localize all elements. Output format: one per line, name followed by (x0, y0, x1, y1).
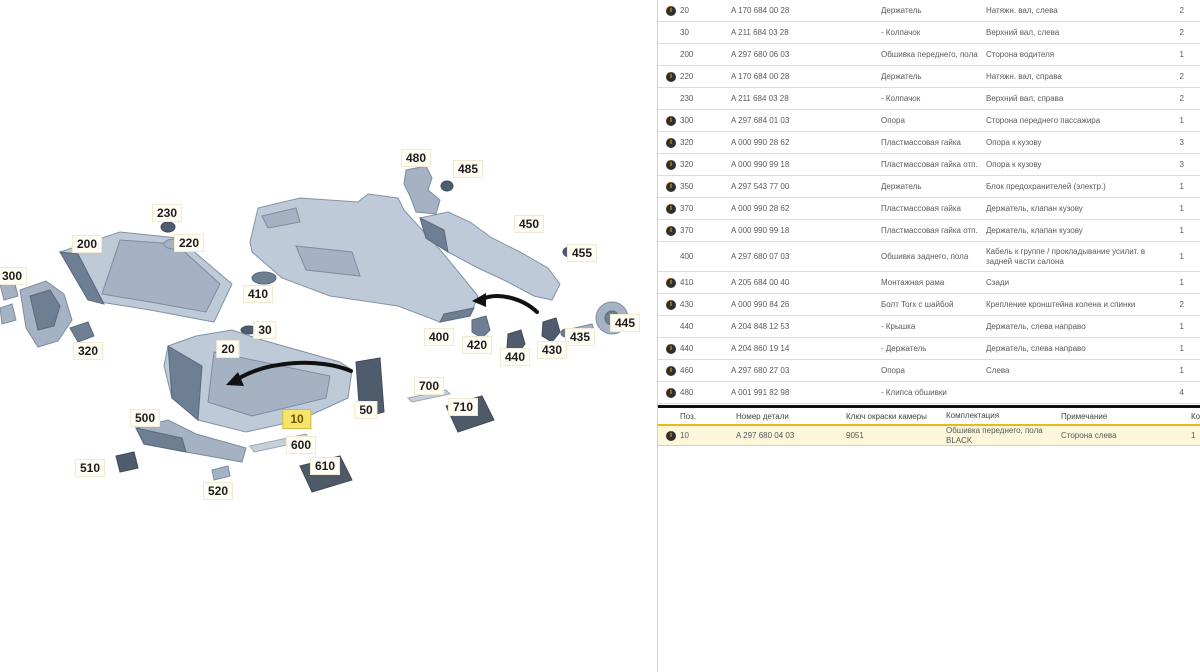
table-row[interactable]: i 30 A 211 684 03 28 - Колпачок Верхний … (658, 22, 1200, 44)
part-name: Опора (881, 116, 986, 125)
table-row[interactable]: i 460 A 297 680 27 03 Опора Слева 1 (658, 360, 1200, 382)
part-qty: 1 (1161, 182, 1200, 191)
part-name: Обшивка переднего, пола (881, 50, 986, 59)
part-number: A 297 680 04 03 (736, 431, 846, 440)
part-number: A 000 990 99 18 (731, 226, 881, 235)
diagram-label[interactable]: 510 (75, 459, 105, 477)
part-note: Сзади (986, 278, 1161, 288)
part-number: A 170 684 00 28 (731, 6, 881, 15)
diagram-label-selected[interactable]: 10 (282, 409, 311, 429)
part-note: Держатель, клапан кузову (986, 226, 1161, 236)
part-number: A 297 680 27 03 (731, 366, 881, 375)
table-row[interactable]: i 440 A 204 848 12 53 - Крышка Держатель… (658, 316, 1200, 338)
position-number: 430 (680, 300, 731, 309)
table-row[interactable]: i 230 A 211 684 03 28 - Колпачок Верхний… (658, 88, 1200, 110)
diagram-label[interactable]: 430 (537, 341, 567, 359)
part-number: A 000 990 84 26 (731, 300, 881, 309)
position-number: 20 (680, 6, 731, 15)
part-qty: 1 (1191, 431, 1200, 440)
diagram-label[interactable]: 710 (448, 398, 478, 416)
position-number: 370 (680, 226, 731, 235)
diagram-label[interactable]: 320 (73, 342, 103, 360)
part-qty: 4 (1161, 388, 1200, 397)
part-number: A 205 684 00 40 (731, 278, 881, 287)
info-icon[interactable]: i (666, 300, 676, 310)
info-icon[interactable]: i (666, 278, 676, 288)
position-number: 320 (680, 160, 731, 169)
diagram-label[interactable]: 440 (500, 348, 530, 366)
diagram-label[interactable]: 450 (514, 215, 544, 233)
position-number: 200 (680, 50, 731, 59)
header-color-key: Ключ окраски камеры (846, 412, 946, 421)
diagram-label[interactable]: 400 (424, 328, 454, 346)
part-name: Держатель (881, 6, 986, 15)
part-name: - Крышка (881, 322, 986, 331)
diagram-label[interactable]: 410 (243, 285, 273, 303)
part-name: Опора (881, 366, 986, 375)
part-qty: 1 (1161, 50, 1200, 59)
position-number: 220 (680, 72, 731, 81)
position-number: 30 (680, 28, 731, 37)
position-number: 320 (680, 138, 731, 147)
header-qty: Кол. (1191, 412, 1200, 421)
header-name: Комплектация (946, 411, 1061, 420)
part-name: Обшивка переднего, пола BLACK (946, 426, 1061, 444)
part-note: Опора к кузову (986, 160, 1161, 170)
position-number: 410 (680, 278, 731, 287)
part-name: Пластмассовая гайка отп. (881, 226, 986, 235)
exploded-parts-diagram (0, 0, 656, 672)
part-number: A 204 860 19 14 (731, 344, 881, 353)
part-number: A 211 684 03 28 (731, 94, 881, 103)
diagram-label[interactable]: 445 (610, 314, 640, 332)
part-name: Пластмассовая гайка (881, 138, 986, 147)
info-icon[interactable]: i (666, 116, 676, 126)
parts-list-pane: i 20 A 170 684 00 28 Держатель Натяжн. в… (657, 0, 1200, 672)
diagram-label[interactable]: 520 (203, 482, 233, 500)
part-note: Крепление кронштейна колена и спинки (986, 300, 1161, 310)
position-number: 230 (680, 94, 731, 103)
part-name: Монтажная рама (881, 278, 986, 287)
part-qty: 1 (1161, 344, 1200, 353)
header-note: Примечание (1061, 412, 1191, 421)
diagram-label[interactable]: 200 (72, 235, 102, 253)
diagram-label[interactable]: 300 (0, 267, 27, 285)
part-qty: 1 (1161, 116, 1200, 125)
position-number: 370 (680, 204, 731, 213)
part-note: Держатель, клапан кузову (986, 204, 1161, 214)
part-qty: 2 (1161, 28, 1200, 37)
part-shape-10[interactable] (164, 330, 352, 432)
table-row[interactable]: i 440 A 204 860 19 14 - Держатель Держат… (658, 338, 1200, 360)
variant-table-header: Поз. Номер детали Ключ окраски камеры Ко… (658, 408, 1200, 424)
part-number: A 000 990 28 62 (731, 204, 881, 213)
part-name: - Держатель (881, 344, 986, 353)
diagram-label[interactable]: 600 (286, 436, 316, 454)
part-shape-480[interactable] (404, 166, 440, 214)
part-qty: 1 (1161, 252, 1200, 261)
part-shape-230[interactable] (161, 222, 175, 232)
part-shape-420[interactable] (472, 316, 490, 338)
position-number: 350 (680, 182, 731, 191)
diagram-label[interactable]: 500 (130, 409, 160, 427)
diagram-label[interactable]: 50 (354, 401, 377, 419)
part-number: A 297 543 77 00 (731, 182, 881, 191)
info-icon[interactable]: i (666, 344, 676, 354)
part-name: - Клипса обшивки (881, 388, 986, 397)
table-row[interactable]: i 400 A 297 680 07 03 Обшивка заднего, п… (658, 242, 1200, 272)
part-number: A 297 684 01 03 (731, 116, 881, 125)
info-icon[interactable]: i (666, 182, 676, 192)
info-icon[interactable]: i (666, 72, 676, 82)
part-note: Кабель к группе / прокладывание усилит. … (986, 247, 1161, 266)
pointer-arrow-rear (472, 293, 537, 312)
position-number: 400 (680, 252, 731, 261)
table-row[interactable]: i 200 A 297 680 06 03 Обшивка переднего,… (658, 44, 1200, 66)
part-note: Сторона слева (1061, 431, 1191, 440)
part-number: A 000 990 28 62 (731, 138, 881, 147)
diagram-label[interactable]: 485 (453, 160, 483, 178)
table-row[interactable]: i 410 A 205 684 00 40 Монтажная рама Сза… (658, 272, 1200, 294)
part-qty: 3 (1161, 160, 1200, 169)
part-note: Держатель, слева направо (986, 344, 1161, 354)
position-number: 480 (680, 388, 731, 397)
info-icon[interactable]: i (666, 388, 676, 398)
part-name: Пластмассовая гайка отп. (881, 160, 986, 169)
part-number: A 297 680 06 03 (731, 50, 881, 59)
parts-table: i 20 A 170 684 00 28 Держатель Натяжн. в… (658, 0, 1200, 404)
part-note: Верхний вал, слева (986, 28, 1161, 38)
diagram-label[interactable]: 420 (462, 336, 492, 354)
part-qty: 2 (1161, 94, 1200, 103)
position-number: 440 (680, 322, 731, 331)
epc-parts-catalog: 4804854504552302202003004104454354304404… (0, 0, 1200, 672)
part-note: Держатель, слева направо (986, 322, 1161, 332)
part-qty: 1 (1161, 366, 1200, 375)
part-number: A 211 684 03 28 (731, 28, 881, 37)
table-row[interactable]: i 20 A 170 684 00 28 Держатель Натяжн. в… (658, 0, 1200, 22)
diagram-label[interactable]: 610 (310, 457, 340, 475)
part-qty: 3 (1161, 138, 1200, 147)
part-name: Держатель (881, 182, 986, 191)
info-icon[interactable]: i (666, 431, 676, 441)
color-key: 9051 (846, 431, 946, 440)
part-qty: 2 (1161, 300, 1200, 309)
part-note: Опора к кузову (986, 138, 1161, 148)
info-icon[interactable]: i (666, 366, 676, 376)
header-part: Номер детали (736, 412, 846, 421)
part-note: Блок предохранителей (электр.) (986, 182, 1161, 192)
diagram-label[interactable]: 700 (414, 377, 444, 395)
table-row[interactable]: i 320 A 000 990 99 18 Пластмассовая гайк… (658, 154, 1200, 176)
part-note: Сторона водителя (986, 50, 1161, 60)
part-note: Натяжн. вал, справа (986, 72, 1161, 82)
info-icon[interactable]: i (666, 138, 676, 148)
part-shape-430[interactable] (542, 318, 560, 342)
diagram-label[interactable]: 480 (401, 149, 431, 167)
part-qty: 1 (1161, 204, 1200, 213)
part-shape-410[interactable] (252, 272, 276, 284)
part-name: Пластмассовая гайка (881, 204, 986, 213)
diagram-label[interactable]: 220 (174, 234, 204, 252)
variant-row-selected[interactable]: i 10 A 297 680 04 03 9051 Обшивка передн… (658, 426, 1200, 446)
part-shape-520[interactable] (212, 466, 230, 480)
part-name: Обшивка заднего, пола (881, 252, 986, 261)
part-name: Держатель (881, 72, 986, 81)
part-name: - Колпачок (881, 94, 986, 103)
part-qty: 1 (1161, 226, 1200, 235)
diagram-pane: 4804854504552302202003004104454354304404… (0, 0, 656, 672)
part-note: Натяжн. вал, слева (986, 6, 1161, 16)
table-row[interactable]: i 370 A 000 990 28 62 Пластмассовая гайк… (658, 198, 1200, 220)
position-number: 440 (680, 344, 731, 353)
part-name: Болт Torx с шайбой (881, 300, 986, 309)
position-number: 10 (680, 431, 736, 440)
part-qty: 1 (1161, 278, 1200, 287)
part-note: Сторона переднего пассажира (986, 116, 1161, 126)
part-number: A 170 684 00 28 (731, 72, 881, 81)
diagram-label[interactable]: 20 (216, 340, 239, 358)
part-shape-485[interactable] (441, 181, 453, 191)
part-note: Верхний вал, справа (986, 94, 1161, 104)
part-number: A 297 680 07 03 (731, 252, 881, 261)
diagram-label[interactable]: 230 (152, 204, 182, 222)
table-row[interactable]: i 320 A 000 990 28 62 Пластмассовая гайк… (658, 132, 1200, 154)
table-row[interactable]: i 350 A 297 543 77 00 Держатель Блок пре… (658, 176, 1200, 198)
part-shape-510[interactable] (116, 452, 138, 472)
part-number: A 204 848 12 53 (731, 322, 881, 331)
part-qty: 2 (1161, 72, 1200, 81)
position-number: 300 (680, 116, 731, 125)
table-row[interactable]: i 480 A 001 991 82 98 - Клипса обшивки 4 (658, 382, 1200, 404)
table-row[interactable]: i 370 A 000 990 99 18 Пластмассовая гайк… (658, 220, 1200, 242)
part-name: - Колпачок (881, 28, 986, 37)
info-icon[interactable]: i (666, 160, 676, 170)
diagram-label[interactable]: 435 (565, 328, 595, 346)
info-icon[interactable]: i (666, 6, 676, 16)
part-number: A 001 991 82 98 (731, 388, 881, 397)
info-icon[interactable]: i (666, 226, 676, 236)
part-number: A 000 990 99 18 (731, 160, 881, 169)
position-number: 460 (680, 366, 731, 375)
part-note: Слева (986, 366, 1161, 376)
diagram-label[interactable]: 455 (567, 244, 597, 262)
table-row[interactable]: i 220 A 170 684 00 28 Держатель Натяжн. … (658, 66, 1200, 88)
table-row[interactable]: i 300 A 297 684 01 03 Опора Сторона пере… (658, 110, 1200, 132)
header-pos: Поз. (680, 412, 736, 421)
part-qty: 2 (1161, 6, 1200, 15)
diagram-label[interactable]: 30 (253, 321, 276, 339)
table-row[interactable]: i 430 A 000 990 84 26 Болт Torx с шайбой… (658, 294, 1200, 316)
info-icon[interactable]: i (666, 204, 676, 214)
variant-table: Поз. Номер детали Ключ окраски камеры Ко… (658, 408, 1200, 446)
part-qty: 1 (1161, 322, 1200, 331)
part-shape-300[interactable] (0, 280, 94, 347)
